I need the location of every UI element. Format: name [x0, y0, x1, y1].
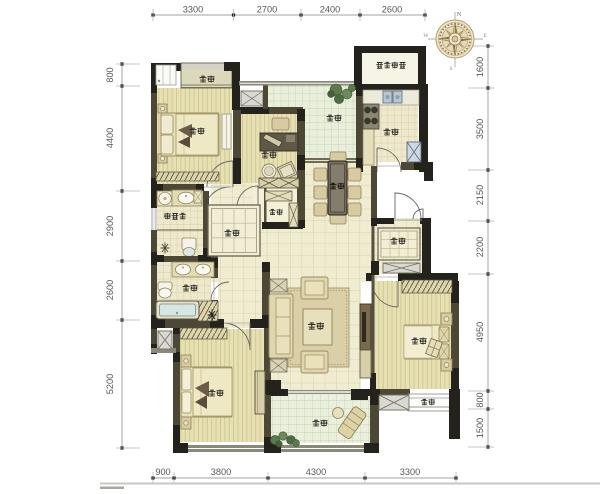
svg-text:S: S	[449, 66, 452, 72]
svg-text:2400: 2400	[320, 5, 340, 15]
svg-text:1500: 1500	[475, 418, 485, 438]
svg-text:2150: 2150	[475, 185, 485, 205]
svg-text:2600: 2600	[382, 5, 402, 15]
svg-text:4400: 4400	[105, 128, 115, 148]
svg-text:800: 800	[105, 67, 115, 82]
svg-text:1600: 1600	[475, 57, 485, 77]
svg-text:3300: 3300	[400, 467, 420, 477]
svg-text:3300: 3300	[183, 5, 203, 15]
svg-text:2900: 2900	[105, 216, 115, 236]
svg-text:4950: 4950	[475, 322, 485, 342]
svg-text:3500: 3500	[475, 119, 485, 139]
svg-text:4300: 4300	[306, 467, 326, 477]
svg-text:800: 800	[475, 392, 485, 407]
svg-text:900: 900	[155, 467, 170, 477]
svg-text:2200: 2200	[475, 237, 485, 257]
svg-text:3800: 3800	[211, 467, 231, 477]
svg-text:W: W	[423, 33, 429, 39]
svg-text:2700: 2700	[257, 5, 277, 15]
svg-text:2600: 2600	[105, 280, 115, 300]
svg-text:N: N	[457, 11, 462, 18]
svg-text:5200: 5200	[105, 374, 115, 394]
